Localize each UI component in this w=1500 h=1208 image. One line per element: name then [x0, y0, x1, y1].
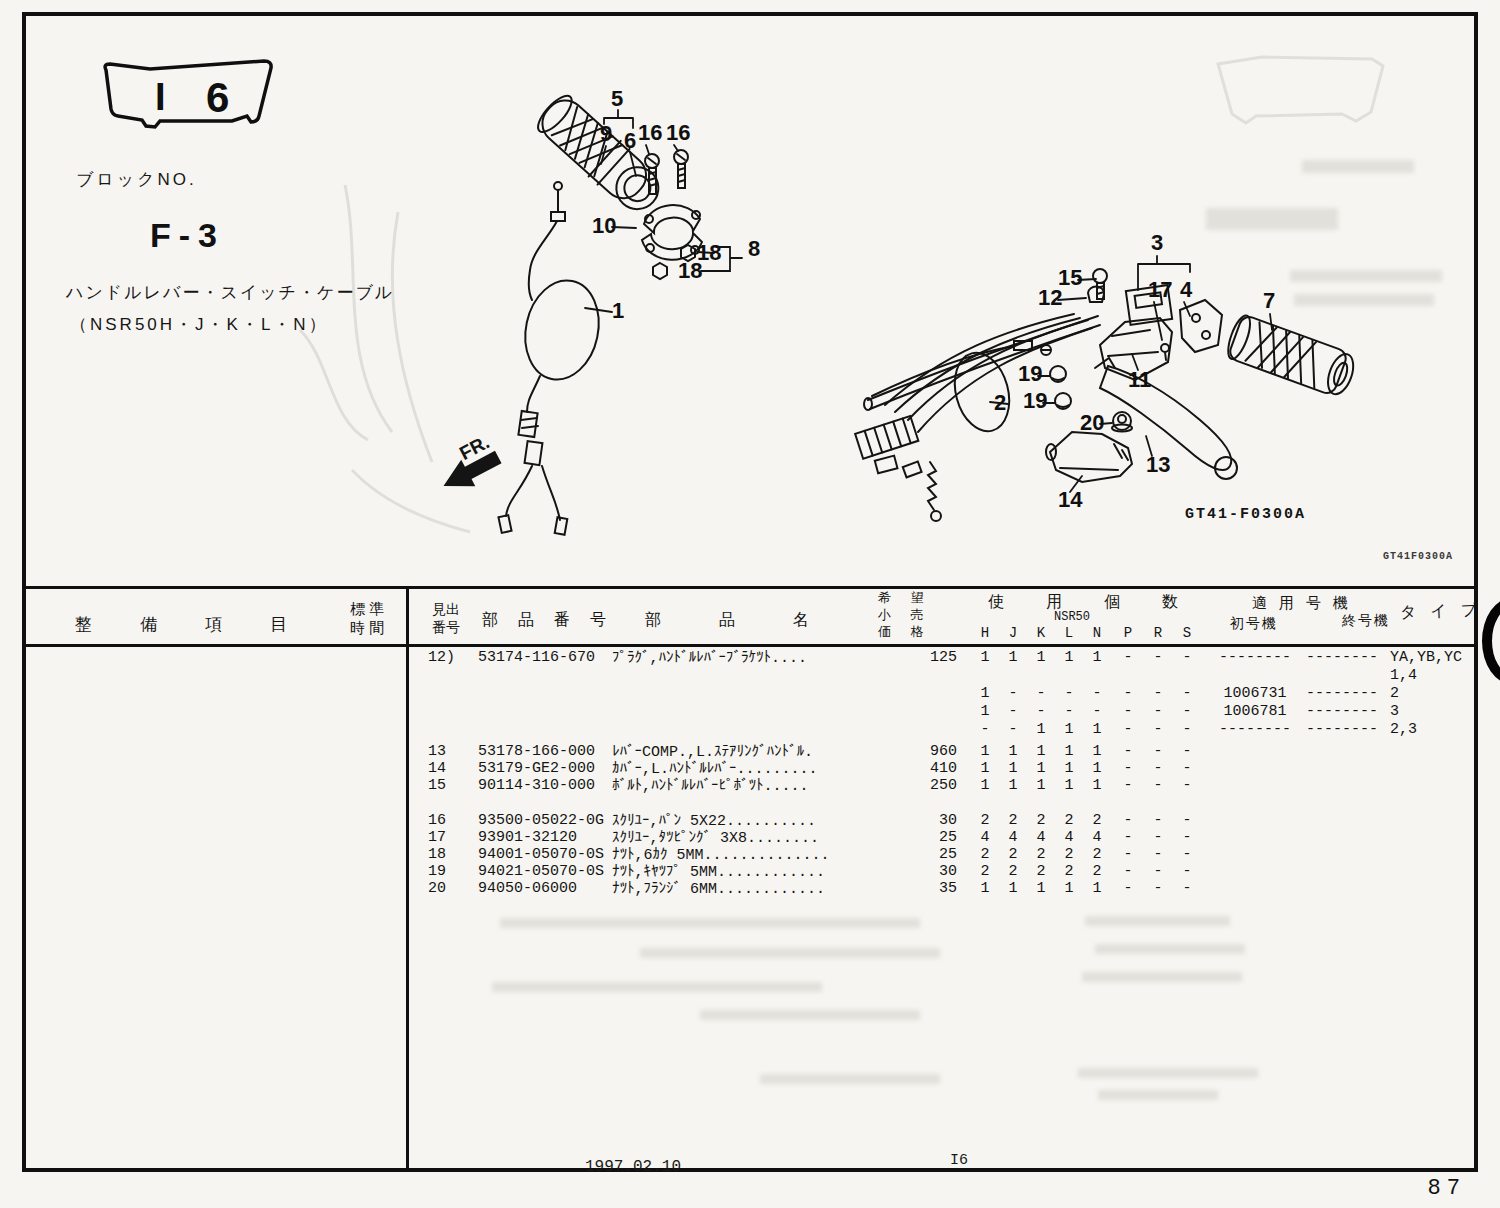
cell-qty: -	[1146, 829, 1170, 846]
cell-qty: -	[1175, 703, 1199, 720]
lever-cover	[1046, 432, 1132, 482]
cell-qty: -	[1175, 760, 1199, 777]
cell-qty: -	[1116, 846, 1140, 863]
screw-16-b	[674, 150, 688, 188]
cell-qty: 4	[1001, 829, 1025, 846]
table-row: --111-------------------2,3	[409, 721, 1478, 739]
type-header: タイプ	[1400, 599, 1492, 623]
cell-qty: 1	[1057, 743, 1081, 760]
nut-19-a	[1050, 366, 1066, 382]
cell-index: 14	[428, 760, 476, 777]
cell-qty: 1	[1085, 721, 1109, 738]
table-header-rule	[26, 644, 1474, 647]
page-number: 87	[1428, 1174, 1466, 1200]
catalog-page: I 6 ブロックNO. F-3 ハンドルレバー・スイッチ・ケーブル （NSR50…	[0, 0, 1500, 1208]
cell-qty: -	[1057, 685, 1081, 702]
cell-index: 13	[428, 743, 476, 760]
cell-part-number: 53174-116-670	[478, 649, 623, 666]
cell-qty: 1	[973, 743, 997, 760]
part-name-header: 部品名	[645, 610, 867, 631]
cell-qty: -	[1175, 846, 1199, 863]
cell-qty: -	[1116, 685, 1140, 702]
cell-part-name: ｶﾊﾞｰ,L.ﾊﾝﾄﾞﾙﾚﾊﾞｰ.........	[612, 760, 922, 778]
cell-qty: -	[1116, 703, 1140, 720]
cell-qty: -	[1146, 760, 1170, 777]
cell-qty: 1	[1001, 880, 1025, 897]
table-row: 1994021-05070-0Sﾅﾂﾄ,ｷﾔﾂﾌﾟ 5MM...........…	[409, 863, 1478, 881]
cell-qty: 1	[973, 777, 997, 794]
table-row: 1793901-32120ｽｸﾘﾕｰ,ﾀﾂﾋﾟﾝｸﾞ 3X8........25…	[409, 829, 1478, 847]
cell-qty: 1	[1001, 777, 1025, 794]
cell-qty: 2	[1029, 863, 1053, 880]
cell-serial-from: --------	[1209, 721, 1301, 738]
cell-part-name: ﾅﾂﾄ,ﾌﾗﾝｼﾞ 6MM............	[612, 880, 922, 898]
cell-qty: 2	[1029, 846, 1053, 863]
usage-col-letter: H	[973, 625, 997, 641]
usage-col-letter: R	[1146, 625, 1170, 641]
cell-qty: 1	[1001, 649, 1025, 666]
part-number-header: 部品番号	[482, 610, 626, 631]
table-row: 1,4	[409, 667, 1478, 685]
cell-qty: -	[1146, 743, 1170, 760]
usage-col-letter: S	[1175, 625, 1199, 641]
cell-qty: -	[1057, 703, 1081, 720]
cell-qty: -	[1146, 846, 1170, 863]
cell-serial-to: --------	[1297, 685, 1387, 702]
cell-qty: -	[1175, 721, 1199, 738]
section-code: I6	[950, 1152, 968, 1169]
cell-qty: 4	[1057, 829, 1081, 846]
cell-qty: 1	[1029, 880, 1053, 897]
part-callout-9: 9	[600, 121, 612, 146]
cell-serial-from: 1006731	[1209, 685, 1301, 702]
cell-part-number: 93901-32120	[478, 829, 623, 846]
cell-index: 19	[428, 863, 476, 880]
cell-qty: 1	[1057, 721, 1081, 738]
cell-part-number: 94050-06000	[478, 880, 623, 897]
ghost-text	[1082, 972, 1242, 982]
part-callout-4: 4	[1180, 277, 1193, 302]
cell-qty: -	[1146, 777, 1170, 794]
cell-price: 25	[885, 846, 957, 863]
cell-type: YA,YB,YC	[1390, 649, 1478, 666]
cell-qty: 1	[1057, 760, 1081, 777]
part-callout-14: 14	[1058, 487, 1083, 512]
cell-qty: 1	[973, 649, 997, 666]
cell-index: 17	[428, 829, 476, 846]
cell-qty: -	[1116, 777, 1140, 794]
part-callout-18: 18	[678, 258, 702, 283]
cell-qty: -	[1175, 743, 1199, 760]
table-row: 1590114-310-000ﾎﾞﾙﾄ,ﾊﾝﾄﾞﾙﾚﾊﾞｰﾋﾟﾎﾞﾂﾄ.....…	[409, 777, 1478, 795]
cell-part-number: 94021-05070-0S	[478, 863, 623, 880]
cell-qty: -	[1175, 777, 1199, 794]
cell-qty: -	[1175, 863, 1199, 880]
serial-to-header: 終号機	[1342, 612, 1390, 630]
cell-qty: 1	[1029, 649, 1053, 666]
fr-arrow: FR.	[429, 430, 505, 499]
price-header-l3: 価 格	[878, 623, 932, 640]
part-callout-11: 11	[1128, 367, 1151, 392]
cell-serial-from: --------	[1209, 649, 1301, 666]
cell-qty: -	[1116, 863, 1140, 880]
left-grip	[1224, 313, 1359, 400]
index-header-l2: 番号	[432, 618, 460, 636]
badge-right-char: 6	[206, 74, 229, 121]
part-callout-12: 12	[1038, 285, 1062, 310]
part-callout-7: 7	[1263, 288, 1275, 313]
cell-qty: 1	[1085, 760, 1109, 777]
ghost-text	[492, 982, 822, 992]
cell-serial-to: --------	[1297, 703, 1387, 720]
cell-part-number: 94001-05070-0S	[478, 846, 623, 863]
cell-part-name: ﾌﾟﾗｸﾞ,ﾊﾝﾄﾞﾙﾚﾊﾞｰﾌﾞﾗｹﾂﾄ....	[612, 649, 922, 667]
table-row: 2094050-06000ﾅﾂﾄ,ﾌﾗﾝｼﾞ 6MM............35…	[409, 880, 1478, 898]
cell-qty: 1	[1085, 777, 1109, 794]
diagram-title: ハンドルレバー・スイッチ・ケーブル	[66, 281, 394, 304]
part-callout-1: 1	[612, 298, 624, 323]
price-header-l2: 小 売	[878, 606, 932, 623]
ghost-text	[1085, 916, 1230, 926]
cell-index: 16	[428, 812, 476, 829]
table-row: 12)53174-116-670ﾌﾟﾗｸﾞ,ﾊﾝﾄﾞﾙﾚﾊﾞｰﾌﾞﾗｹﾂﾄ...…	[409, 649, 1478, 667]
part-callout-19: 19	[1023, 388, 1047, 413]
cell-type: 3	[1390, 703, 1478, 720]
part-callout-19: 19	[1018, 361, 1042, 386]
parts-table-body: 12)53174-116-670ﾌﾟﾗｸﾞ,ﾊﾝﾄﾞﾙﾚﾊﾞｰﾌﾞﾗｹﾂﾄ...…	[409, 648, 1478, 908]
part-callout-2: 2	[994, 390, 1006, 415]
part-callout-16: 16	[638, 120, 662, 145]
cell-qty: -	[1116, 829, 1140, 846]
usage-col-letter: P	[1116, 625, 1140, 641]
cell-qty: -	[1116, 760, 1140, 777]
cell-qty: 2	[1057, 846, 1081, 863]
table-row: 1-------1006731--------2	[409, 685, 1478, 703]
usage-col-letter: J	[1001, 625, 1025, 641]
cell-part-number: 90114-310-000	[478, 777, 623, 794]
cell-qty: 2	[1085, 812, 1109, 829]
cell-part-number: 53178-166-000	[478, 743, 623, 760]
cell-qty: 1	[973, 880, 997, 897]
cell-qty: -	[1146, 649, 1170, 666]
cell-index: 20	[428, 880, 476, 897]
block-no-label: ブロックNO.	[76, 168, 197, 191]
cell-qty: 1	[1029, 777, 1053, 794]
serial-from-header: 初号機	[1230, 615, 1278, 633]
cell-qty: 1	[1001, 743, 1025, 760]
badge-left-char: I	[155, 76, 166, 118]
cell-index: 15	[428, 777, 476, 794]
cell-qty: -	[1175, 685, 1199, 702]
cell-qty: 1	[1001, 760, 1025, 777]
index-header-l1: 見出	[432, 600, 460, 618]
cell-part-number: 53179-GE2-000	[478, 760, 623, 777]
cell-qty: -	[1116, 743, 1140, 760]
ghost-text	[640, 948, 940, 958]
cell-price: 25	[885, 829, 957, 846]
cell-qty: -	[1146, 880, 1170, 897]
cell-type: 2,3	[1390, 721, 1478, 738]
cell-part-name: ﾅﾂﾄ,6ｶｸ 5MM..............	[612, 846, 922, 864]
cell-qty: 2	[973, 812, 997, 829]
table-row: 1453179-GE2-000ｶﾊﾞｰ,L.ﾊﾝﾄﾞﾙﾚﾊﾞｰ.........…	[409, 760, 1478, 778]
cell-qty: 2	[1001, 846, 1025, 863]
cell-qty: 4	[973, 829, 997, 846]
part-callout-6: 6	[624, 128, 636, 153]
cell-qty: -	[1175, 880, 1199, 897]
part-callout-8: 8	[748, 236, 760, 261]
cell-qty: -	[1116, 649, 1140, 666]
part-callout-10: 10	[592, 213, 616, 238]
cell-price: 960	[885, 743, 957, 760]
cell-qty: -	[1085, 685, 1109, 702]
cell-qty: -	[1029, 685, 1053, 702]
part-callout-5: 5	[611, 86, 623, 111]
cell-qty: 1	[1057, 649, 1081, 666]
cell-part-name: ﾅﾂﾄ,ｷﾔﾂﾌﾟ 5MM............	[612, 863, 922, 881]
nut-20	[1112, 412, 1132, 432]
cell-qty: 1	[973, 685, 997, 702]
block-no: F-3	[150, 216, 225, 255]
print-date: 1997.02.10	[585, 1158, 681, 1176]
cell-serial-from: 1006781	[1209, 703, 1301, 720]
table-row: 1894001-05070-0Sﾅﾂﾄ,6ｶｸ 5MM.............…	[409, 846, 1478, 864]
model-list: （NSR50H・J・K・L・N）	[70, 313, 329, 336]
cell-qty: 2	[1085, 863, 1109, 880]
cell-index: 18	[428, 846, 476, 863]
cell-qty: 1	[1029, 760, 1053, 777]
cell-qty: 1	[973, 760, 997, 777]
cell-qty: -	[973, 721, 997, 738]
table-row: 1353178-166-000ﾚﾊﾞｰCOMP.,L.ｽﾃｱﾘﾝｸﾞﾊﾝﾄﾞﾙ.…	[409, 743, 1478, 761]
ghost-text	[760, 1074, 940, 1084]
part-callout-17: 17	[1148, 277, 1172, 302]
cell-price: 35	[885, 880, 957, 897]
usage-model-label: NSR50	[1054, 610, 1090, 624]
edge-code: GT41F0300A	[1383, 551, 1453, 562]
cell-type: 2	[1390, 685, 1478, 702]
part-callout-16: 16	[666, 120, 690, 145]
cell-index: 12)	[428, 649, 476, 666]
cell-serial-to: --------	[1297, 721, 1387, 738]
cell-qty: 1	[973, 703, 997, 720]
maintenance-items-header: 整備項目	[75, 613, 335, 636]
cell-qty: 1	[1029, 721, 1053, 738]
cell-price: 30	[885, 812, 957, 829]
callout-layer: 5961616101818813151217471121919201314	[592, 86, 1275, 512]
cell-qty: -	[1146, 812, 1170, 829]
nut-19-b	[1055, 393, 1071, 409]
usage-qty-header: 使用個数	[988, 592, 1220, 613]
serial-header: 適用号機	[1252, 594, 1360, 613]
cell-qty: 2	[1001, 863, 1025, 880]
cell-qty: 1	[1085, 880, 1109, 897]
cell-qty: -	[1116, 880, 1140, 897]
cell-qty: -	[1001, 721, 1025, 738]
usage-col-letter: L	[1057, 625, 1081, 641]
cell-qty: 2	[973, 846, 997, 863]
cell-qty: 2	[1057, 812, 1081, 829]
table-row: 1693500-05022-0Gｽｸﾘﾕｰ,ﾊﾟﾝ 5X22..........…	[409, 812, 1478, 830]
wire-harness	[855, 314, 1092, 521]
cell-qty: 1	[1085, 649, 1109, 666]
cell-qty: 2	[1085, 846, 1109, 863]
cell-qty: -	[1175, 829, 1199, 846]
cell-part-name: ｽｸﾘﾕｰ,ﾊﾟﾝ 5X22..........	[612, 812, 922, 830]
cell-part-name: ﾚﾊﾞｰCOMP.,L.ｽﾃｱﾘﾝｸﾞﾊﾝﾄﾞﾙ.	[612, 743, 922, 761]
ghost-text	[1095, 944, 1245, 954]
cell-qty: 2	[1029, 812, 1053, 829]
usage-col-letter: N	[1085, 625, 1109, 641]
block-badge: I 6	[90, 50, 310, 145]
cell-qty: -	[1175, 812, 1199, 829]
part-callout-3: 3	[1151, 230, 1163, 255]
cell-price: 30	[885, 863, 957, 880]
cell-qty: -	[1085, 703, 1109, 720]
ghost-text	[500, 918, 920, 928]
cell-qty: 4	[1029, 829, 1053, 846]
ghost-text	[700, 1010, 920, 1020]
cell-qty: -	[1175, 649, 1199, 666]
cell-qty: 1	[1029, 743, 1053, 760]
cell-qty: -	[1116, 812, 1140, 829]
cell-qty: -	[1001, 685, 1025, 702]
usage-col-letter: K	[1029, 625, 1053, 641]
part-callout-20: 20	[1080, 410, 1104, 435]
cell-qty: 1	[1085, 743, 1109, 760]
cell-qty: -	[1029, 703, 1053, 720]
cell-price: 125	[885, 649, 957, 666]
cell-serial-to: --------	[1297, 649, 1387, 666]
ghost-text	[1098, 1090, 1218, 1100]
table-top-rule	[26, 586, 1474, 589]
cell-qty: -	[1146, 721, 1170, 738]
table-row: 1-------1006781--------3	[409, 703, 1478, 721]
cell-qty: -	[1001, 703, 1025, 720]
diagram-code: GT41-F0300A	[1185, 506, 1306, 523]
cell-qty: -	[1146, 685, 1170, 702]
cell-qty: 1	[1057, 777, 1081, 794]
cell-part-name: ﾎﾞﾙﾄ,ﾊﾝﾄﾞﾙﾚﾊﾞｰﾋﾟﾎﾞﾂﾄ.....	[612, 777, 922, 795]
cell-price: 410	[885, 760, 957, 777]
cell-qty: 2	[973, 863, 997, 880]
parts-diagram: FR. GT41-F0300A 596161610181881315121747…	[410, 50, 1380, 560]
cell-qty: -	[1146, 703, 1170, 720]
cell-price: 250	[885, 777, 957, 794]
cell-qty: 2	[1057, 863, 1081, 880]
cell-type: 1,4	[1390, 667, 1478, 684]
cell-qty: -	[1146, 863, 1170, 880]
standard-time-header-l2: 時 間	[350, 618, 384, 637]
part-callout-13: 13	[1146, 452, 1170, 477]
price-header-l1: 希 望	[878, 589, 932, 606]
cell-qty: 2	[1001, 812, 1025, 829]
cell-part-number: 93500-05022-0G	[478, 812, 623, 829]
standard-time-header-l1: 標 準	[350, 599, 384, 618]
cell-qty: 1	[1057, 880, 1081, 897]
screw-16-a	[645, 154, 659, 194]
ghost-text	[1078, 1068, 1258, 1078]
cell-qty: -	[1116, 721, 1140, 738]
cell-part-name: ｽｸﾘﾕｰ,ﾀﾂﾋﾟﾝｸﾞ 3X8........	[612, 829, 922, 847]
cell-qty: 4	[1085, 829, 1109, 846]
